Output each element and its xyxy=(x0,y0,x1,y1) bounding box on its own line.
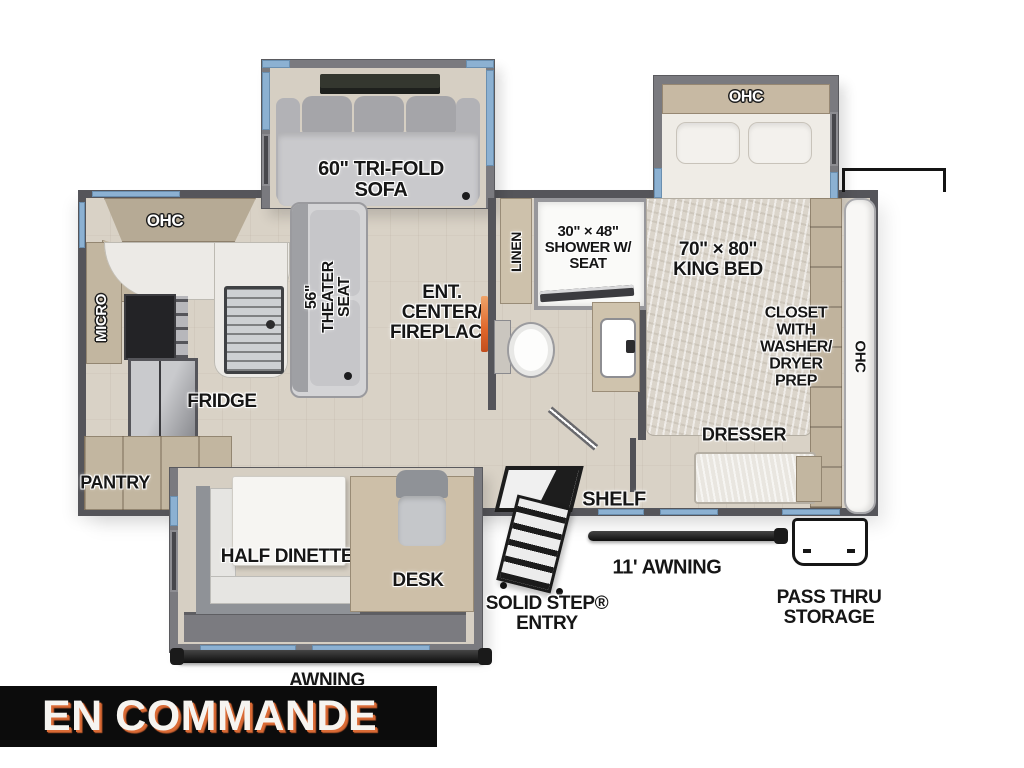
wall-bath-left xyxy=(488,198,496,410)
rear-ohc-label: OHC xyxy=(852,336,869,378)
ent-center-label: ENT. CENTER/ FIREPLACE xyxy=(390,283,494,343)
awning-bar-camp-side xyxy=(176,650,486,663)
window-strip xyxy=(170,496,178,526)
sofa-back-cushion xyxy=(302,96,352,134)
pillow xyxy=(748,122,812,164)
window-strip xyxy=(830,172,838,200)
step-foot-dot xyxy=(500,582,507,589)
bath-faucet-icon xyxy=(626,340,635,353)
half-dinette-label: HALF DINETTE xyxy=(221,547,353,567)
window-frame xyxy=(262,134,270,186)
desk-chair-back xyxy=(396,470,448,498)
dinette-bench-back xyxy=(196,486,210,614)
window-strip xyxy=(660,509,718,515)
dinette-bench-cushion xyxy=(210,576,362,604)
pass-thru-latch xyxy=(803,549,811,553)
pass-thru-storage-box xyxy=(792,518,868,566)
kitchen-sink xyxy=(224,286,284,374)
theater-seat-label: 56" THEATER SEAT xyxy=(303,257,355,337)
awning-camp-side-label: AWNING xyxy=(289,671,365,685)
bedroom-door xyxy=(630,438,636,492)
faucet-icon xyxy=(266,320,275,329)
fridge-label: FRIDGE xyxy=(187,392,256,412)
awning-bar-end-cap xyxy=(170,648,184,665)
pantry-label: PANTRY xyxy=(80,473,150,492)
awning-door-side-label: 11' AWNING xyxy=(613,557,722,578)
awning-camp-side-label-clipped: AWNING xyxy=(262,671,392,685)
theater-cupholder-dot xyxy=(344,372,352,380)
window-strip xyxy=(92,191,180,197)
window-strip xyxy=(262,60,290,68)
awning-bar-end-cap xyxy=(774,528,788,544)
pass-thru-storage-label: PASS THRU STORAGE xyxy=(777,588,882,628)
sofa-label: 60" TRI-FOLD SOFA xyxy=(318,159,444,201)
sofa-leg-dot xyxy=(462,192,470,200)
micro-label: MICRO xyxy=(93,287,111,349)
dresser-label: DRESSER xyxy=(702,425,786,444)
window-strip xyxy=(466,60,494,68)
fireplace-glow xyxy=(481,296,488,352)
desk-label: DESK xyxy=(392,571,443,591)
awning-bar-door-side xyxy=(588,531,780,541)
sofa-back-cushion xyxy=(406,96,456,134)
closet-label: CLOSET WITH WASHER/ DRYER PREP xyxy=(760,306,832,391)
range-control-panel xyxy=(176,296,188,358)
window-frame xyxy=(830,112,838,166)
solid-step-entry-label: SOLID STEP® ENTRY xyxy=(486,594,609,634)
king-bed-label: 70" × 80" KING BED xyxy=(673,240,763,280)
kitchen-ohc-label: OHC xyxy=(147,212,184,230)
dinette-slide-shadow-band xyxy=(184,612,466,642)
window-strip xyxy=(782,509,840,515)
linen-label: LINEN xyxy=(508,225,524,279)
awning-bar-end-cap xyxy=(478,648,492,665)
desk-chair-seat xyxy=(398,496,446,546)
toilet-bowl xyxy=(507,322,555,378)
order-status-banner: EN COMMANDE xyxy=(0,686,437,747)
bedroom-ohc-label: OHC xyxy=(729,90,763,107)
pillow xyxy=(676,122,740,164)
rear-awning-arm xyxy=(943,168,946,192)
pass-thru-latch xyxy=(847,549,855,553)
sofa-back-cushion xyxy=(354,96,404,134)
shelf-label: SHELF xyxy=(582,489,646,510)
nightstand xyxy=(796,456,822,502)
range-cooktop xyxy=(124,294,176,360)
order-status-text: EN COMMANDE xyxy=(42,692,377,741)
window-strip xyxy=(79,202,85,248)
window-strip xyxy=(486,70,494,166)
rear-awning-arm xyxy=(842,168,845,192)
floorplan-canvas: 60" TRI-FOLD SOFA OHC OHC MICRO FRIDGE P… xyxy=(0,0,1024,768)
window-strip xyxy=(262,72,270,130)
wall-top-bath xyxy=(488,190,656,198)
tv-icon xyxy=(320,74,440,94)
rear-awning-arm xyxy=(842,168,946,171)
shower-label: 30" × 48" SHOWER W/ SEAT xyxy=(545,224,631,272)
window-frame xyxy=(170,530,178,592)
window-strip xyxy=(654,168,662,198)
